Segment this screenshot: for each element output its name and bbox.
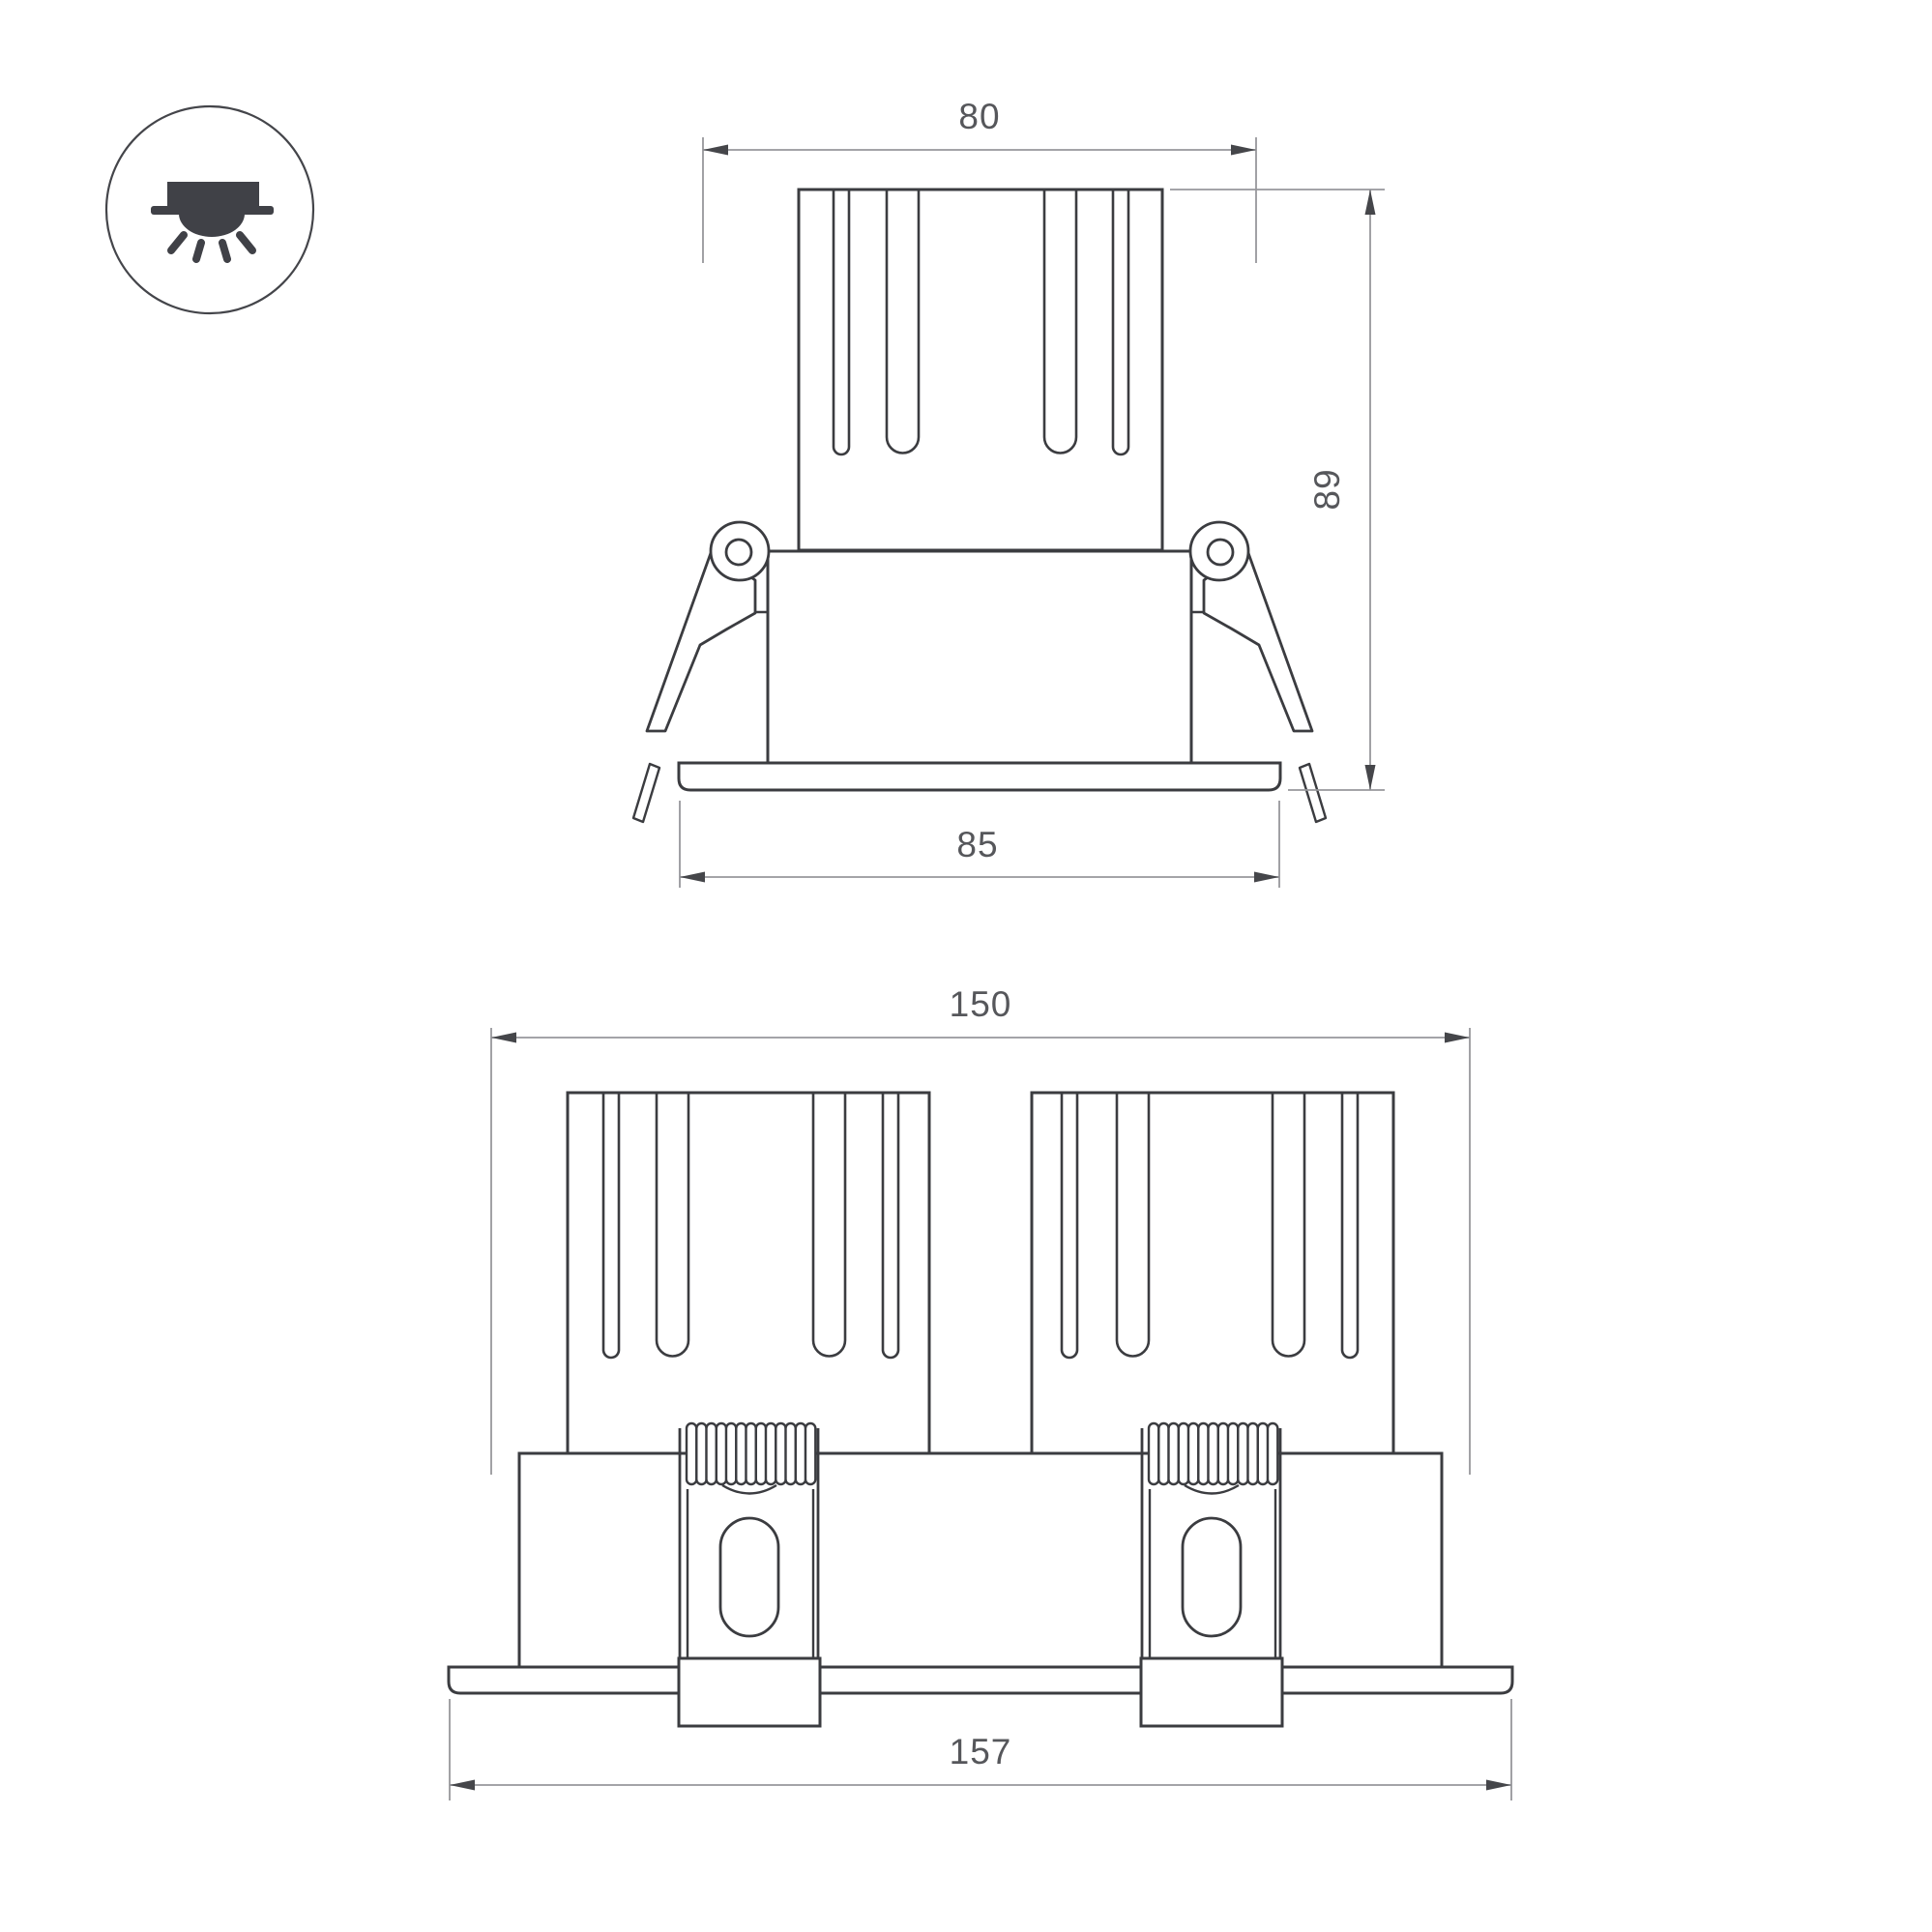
twin-heatsink-left xyxy=(568,1093,929,1453)
twin-heatsink-right xyxy=(1032,1093,1393,1453)
twin-luminaire-outline xyxy=(449,1093,1512,1726)
dimension-flange-width-single: 85 xyxy=(680,801,1279,888)
dim-label-body-width-twin: 150 xyxy=(950,984,1012,1024)
technical-drawing-page: 80 89 85 xyxy=(0,0,1932,1932)
dim-label-top-width-single: 80 xyxy=(958,97,1000,136)
single-trim-flange xyxy=(679,763,1280,790)
single-heatsink xyxy=(799,190,1162,550)
dim-label-flange-width-single: 85 xyxy=(956,825,998,864)
view-front-twin: 150 157 xyxy=(449,984,1512,1800)
dimension-flange-width-twin: 157 xyxy=(450,1699,1511,1800)
dim-label-height-single: 89 xyxy=(1307,468,1347,510)
dim-label-flange-width-twin: 157 xyxy=(950,1732,1012,1771)
single-luminaire-outline xyxy=(633,190,1326,822)
single-body xyxy=(768,551,1191,763)
twin-trim-flange xyxy=(449,1667,1512,1693)
luminaire-dimension-drawing: 80 89 85 xyxy=(0,0,1932,1932)
dimension-height-single: 89 xyxy=(1170,190,1385,790)
view-front-single: 80 89 85 xyxy=(633,97,1385,888)
twin-body xyxy=(519,1453,1442,1667)
icon-badge xyxy=(106,106,313,313)
